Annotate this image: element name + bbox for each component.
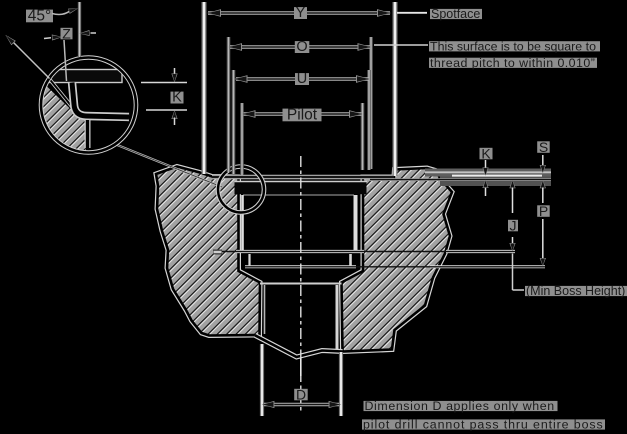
svg-text:P: P xyxy=(539,203,548,219)
svg-text:pilot drill cannot pass thru e: pilot drill cannot pass thru entire boss xyxy=(363,418,604,432)
svg-text:O: O xyxy=(296,39,307,55)
svg-text:Z: Z xyxy=(62,26,71,42)
svg-text:Y: Y xyxy=(296,5,306,21)
svg-text:K: K xyxy=(481,146,491,162)
svg-text:This surface is to be square t: This surface is to be square to xyxy=(430,39,596,53)
svg-text:U: U xyxy=(297,71,307,87)
svg-text:45°: 45° xyxy=(28,8,51,25)
svg-text:thread pitch to within 0.010”: thread pitch to within 0.010” xyxy=(430,56,595,70)
svg-text:(Min Boss Height): (Min Boss Height) xyxy=(526,284,625,298)
svg-text:Dimension D applies only when: Dimension D applies only when xyxy=(365,399,555,413)
svg-text:K: K xyxy=(172,90,182,106)
svg-text:Spotface: Spotface xyxy=(431,7,480,21)
svg-text:Pilot: Pilot xyxy=(287,107,318,124)
svg-text:J: J xyxy=(510,218,517,234)
svg-text:D: D xyxy=(296,387,306,403)
svg-text:S: S xyxy=(539,139,548,155)
